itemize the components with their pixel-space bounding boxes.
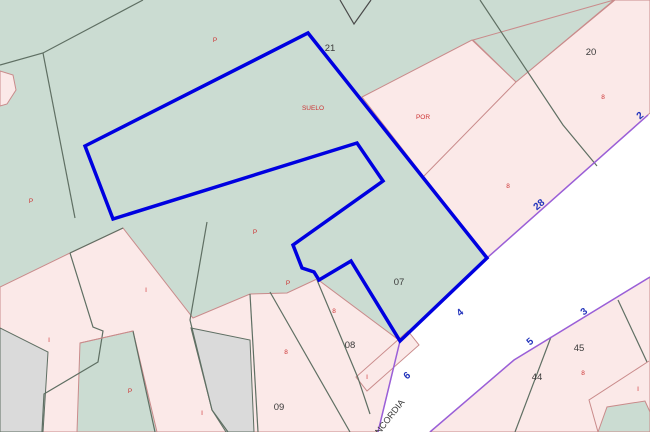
- land-use-label: 8: [581, 370, 585, 377]
- cadastral-map-viewport: 21200708094544 SUELOPORPPPPP88888IIIII 2…: [0, 0, 650, 432]
- land-use-label: I: [48, 337, 50, 344]
- land-use-label: I: [366, 374, 368, 381]
- land-use-label: I: [637, 386, 639, 393]
- land-use-label: 8: [506, 183, 510, 190]
- cadastral-map: 21200708094544 SUELOPORPPPPP88888IIIII 2…: [0, 0, 650, 432]
- parcel-number-label: 20: [586, 47, 597, 58]
- land-use-label: P: [213, 37, 217, 44]
- parcel-number-label: 09: [274, 402, 285, 413]
- land-use-label: P: [29, 198, 33, 205]
- parcel-number-label: 21: [325, 43, 336, 54]
- land-use-label: I: [145, 287, 147, 294]
- parcel-number-label: 45: [574, 343, 585, 354]
- land-use-label: POR: [416, 114, 430, 121]
- land-use-label: SUELO: [302, 105, 324, 112]
- parcel-number-label: 44: [532, 372, 543, 383]
- land-use-label: P: [128, 388, 132, 395]
- land-use-label: P: [286, 280, 290, 287]
- land-use-label: I: [201, 410, 203, 417]
- land-use-label: 8: [601, 94, 605, 101]
- land-use-label: P: [253, 229, 257, 236]
- land-use-label: 8: [332, 308, 336, 315]
- parcel-number-label: 07: [394, 277, 405, 288]
- parcel-number-label: 08: [345, 340, 356, 351]
- land-use-label: 8: [284, 349, 288, 356]
